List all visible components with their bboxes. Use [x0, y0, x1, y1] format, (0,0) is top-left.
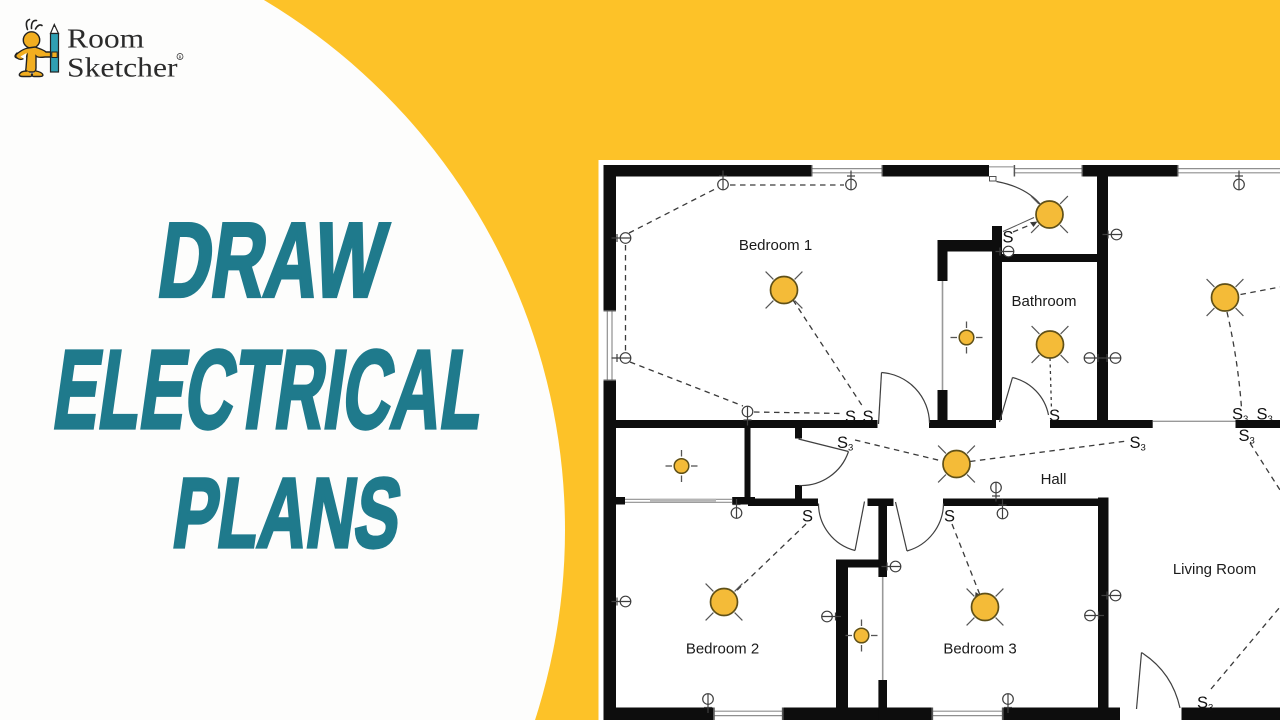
svg-text:DRAW: DRAW — [152, 201, 394, 319]
svg-text:S: S — [1049, 407, 1060, 425]
svg-text:S: S — [944, 508, 955, 526]
svg-text:S: S — [845, 408, 856, 426]
svg-text:Bedroom 2: Bedroom 2 — [686, 641, 759, 658]
svg-text:ELECTRICAL: ELECTRICAL — [47, 326, 493, 451]
svg-text:R: R — [178, 54, 181, 59]
svg-text:Room: Room — [67, 25, 144, 54]
svg-text:Sketcher: Sketcher — [67, 54, 178, 83]
svg-text:Bedroom 3: Bedroom 3 — [943, 641, 1016, 658]
svg-text:S: S — [1003, 229, 1014, 247]
svg-text:Hall: Hall — [1041, 471, 1067, 488]
svg-text:Bathroom: Bathroom — [1011, 293, 1076, 310]
svg-text:S: S — [863, 408, 874, 426]
svg-text:PLANS: PLANS — [167, 458, 409, 568]
svg-text:S: S — [802, 508, 813, 526]
svg-text:Bedroom 1: Bedroom 1 — [739, 237, 812, 254]
svg-text:Living Room: Living Room — [1173, 561, 1256, 578]
